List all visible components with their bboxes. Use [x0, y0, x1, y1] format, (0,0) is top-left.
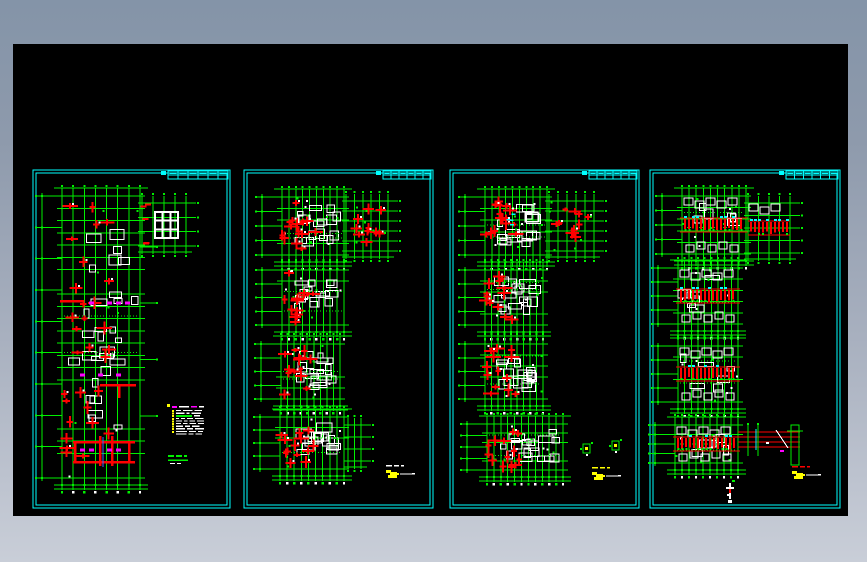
detail-callout [792, 466, 821, 479]
detail-callout [592, 467, 621, 480]
detail-callout [609, 439, 622, 453]
title-block-strip [376, 171, 431, 179]
cad-preview[interactable] [13, 44, 848, 516]
detail-callout [580, 442, 593, 456]
detail-callout [167, 404, 170, 407]
floor-plan [255, 186, 401, 270]
floor-plan [458, 333, 551, 414]
floor-plan [655, 185, 803, 269]
drawing-sheets [13, 44, 848, 516]
sheet-4 [648, 170, 840, 508]
sheet-3 [450, 170, 639, 508]
floor-plan [35, 185, 199, 493]
floor-plan [254, 333, 348, 414]
detail-callout [738, 423, 803, 465]
floor-plan [460, 413, 571, 485]
floor-plan [253, 406, 374, 484]
floor-plan [458, 186, 607, 270]
title-block-strip [161, 171, 228, 179]
floor-plan [648, 414, 746, 478]
page-background [0, 0, 867, 562]
drawing-title-label [168, 455, 188, 464]
sheet-1 [33, 170, 230, 508]
detail-callout [726, 480, 735, 503]
title-block-strip [582, 171, 637, 179]
floor-plan [651, 257, 746, 339]
sheet-2 [244, 170, 433, 508]
notes-annotation [172, 406, 204, 435]
detail-callout [386, 465, 415, 478]
floor-plan [458, 259, 551, 340]
floor-plan [651, 335, 746, 417]
title-block-strip [779, 171, 838, 179]
floor-plan [255, 259, 352, 340]
